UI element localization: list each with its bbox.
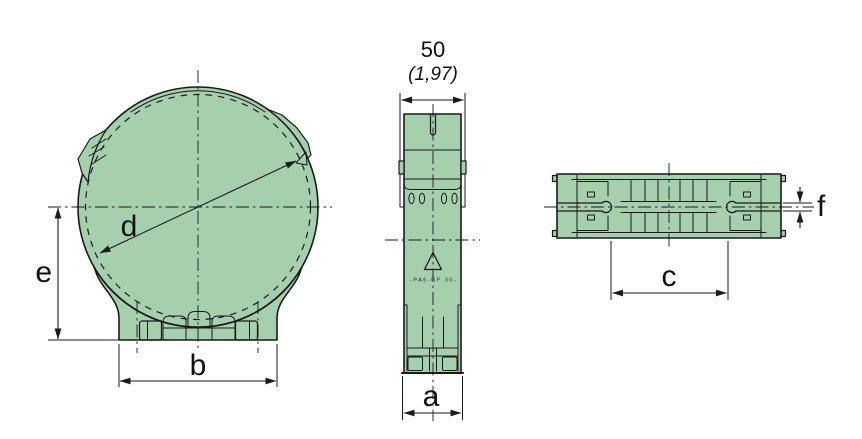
side-tab-right	[461, 161, 466, 174]
clamp-engineering-drawing: d e b 50 (1,97) -PA6-GF 3	[0, 0, 862, 439]
technical-drawing-canvas: d e b 50 (1,97) -PA6-GF 3	[0, 0, 862, 439]
dim-label-c: c	[662, 260, 677, 293]
material-marking-text: -PA6-GF 30-	[410, 278, 456, 284]
side-tab-left	[399, 161, 404, 174]
dim-label-d: d	[121, 210, 138, 243]
dim-label-b: b	[190, 349, 207, 382]
dim-label-a: a	[423, 380, 440, 413]
side-body	[404, 114, 461, 373]
dim-label-e: e	[35, 256, 52, 289]
width-inch-label: (1,97)	[408, 64, 458, 85]
bottom-view: c f	[544, 163, 826, 300]
front-view: d e b	[35, 70, 332, 387]
dim-label-f: f	[817, 190, 826, 223]
side-view: 50 (1,97) -PA6-GF 30- a	[385, 37, 480, 421]
width-mm-label: 50	[421, 37, 445, 62]
